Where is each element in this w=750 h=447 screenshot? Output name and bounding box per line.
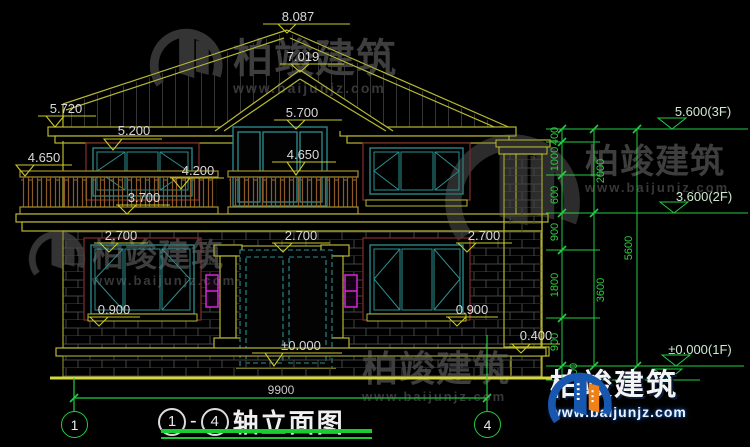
balcony-railing	[228, 171, 358, 214]
chain-c1-600: 600	[549, 186, 561, 204]
watermark-site: www.baijunjz.com	[233, 80, 397, 96]
dim-ground-floor: ±0.000	[281, 338, 321, 353]
level-2f: 3.600(2F)	[676, 189, 732, 204]
chain-c1-400: 400	[549, 127, 561, 145]
dim-sill-left: 0.900	[98, 302, 131, 317]
title-underline-thin	[161, 437, 372, 439]
axis-bubble-4: 4	[474, 411, 501, 438]
chain-c1-1800: 1800	[549, 273, 561, 297]
chain-c1-900a: 900	[549, 223, 561, 241]
brand-logo-icon	[546, 360, 616, 440]
title-underline-thick	[161, 429, 372, 433]
dim-overall-width: 9900	[268, 383, 295, 397]
level-3f: 5.600(3F)	[675, 104, 731, 119]
dim-window-head-2f: 4.200	[182, 163, 215, 178]
dim-window-head-1f-left: 2.700	[105, 228, 138, 243]
chain-c1-1000: 1000	[549, 147, 561, 171]
chain-c1-900b: 900	[549, 333, 561, 351]
dim-plinth-ledge: 0.400	[520, 328, 553, 343]
chain-c2-3600: 3600	[595, 278, 607, 302]
axis-number: 4	[484, 417, 492, 433]
axis-bubble-1: 1	[61, 411, 88, 438]
dim-window-head-1f-right: 2.700	[468, 228, 501, 243]
title-text: 轴立面图	[233, 403, 345, 440]
dim-porch-beam: 2.700	[285, 228, 318, 243]
dim-sill-right: 0.900	[456, 302, 489, 317]
level-1f: ±0.000(1F)	[668, 342, 732, 357]
window-1f-right	[363, 238, 470, 321]
watermark-brand: 柏竣建筑	[362, 348, 510, 389]
dim-terrace-rail: 4.650	[28, 150, 61, 165]
axis-number: 1	[71, 417, 79, 433]
elevation-drawing: 柏竣建筑 www.baijunjz.com 柏竣建筑 www.baijunjz.…	[0, 0, 750, 447]
wall-lamp-right	[345, 275, 357, 307]
chain-c3-5600: 5600	[623, 236, 635, 260]
dim-gable-peak: 7.019	[287, 49, 320, 64]
watermark-bottom: 柏竣建筑 www.baijunjz.com	[362, 340, 510, 404]
dim-eave-left: 5.720	[50, 101, 83, 116]
dim-balcony-door-head: 5.700	[286, 105, 319, 120]
dim-balcony-rail: 4.650	[287, 147, 320, 162]
brand-logo: 柏竣建筑 www.baijunjz.com	[546, 360, 687, 420]
chain-c2-2000: 2000	[595, 159, 607, 183]
dim-eave-soffit: 5.200	[118, 123, 151, 138]
watermark-site: www.baijunjz.com	[92, 273, 236, 288]
dim-terrace-floor: 3.700	[128, 190, 161, 205]
drawing-title: 1 - 4 轴立面图	[158, 403, 345, 440]
dim-ridge: 8.087	[282, 9, 315, 24]
watermark-site: www.baijunjz.com	[362, 389, 510, 404]
